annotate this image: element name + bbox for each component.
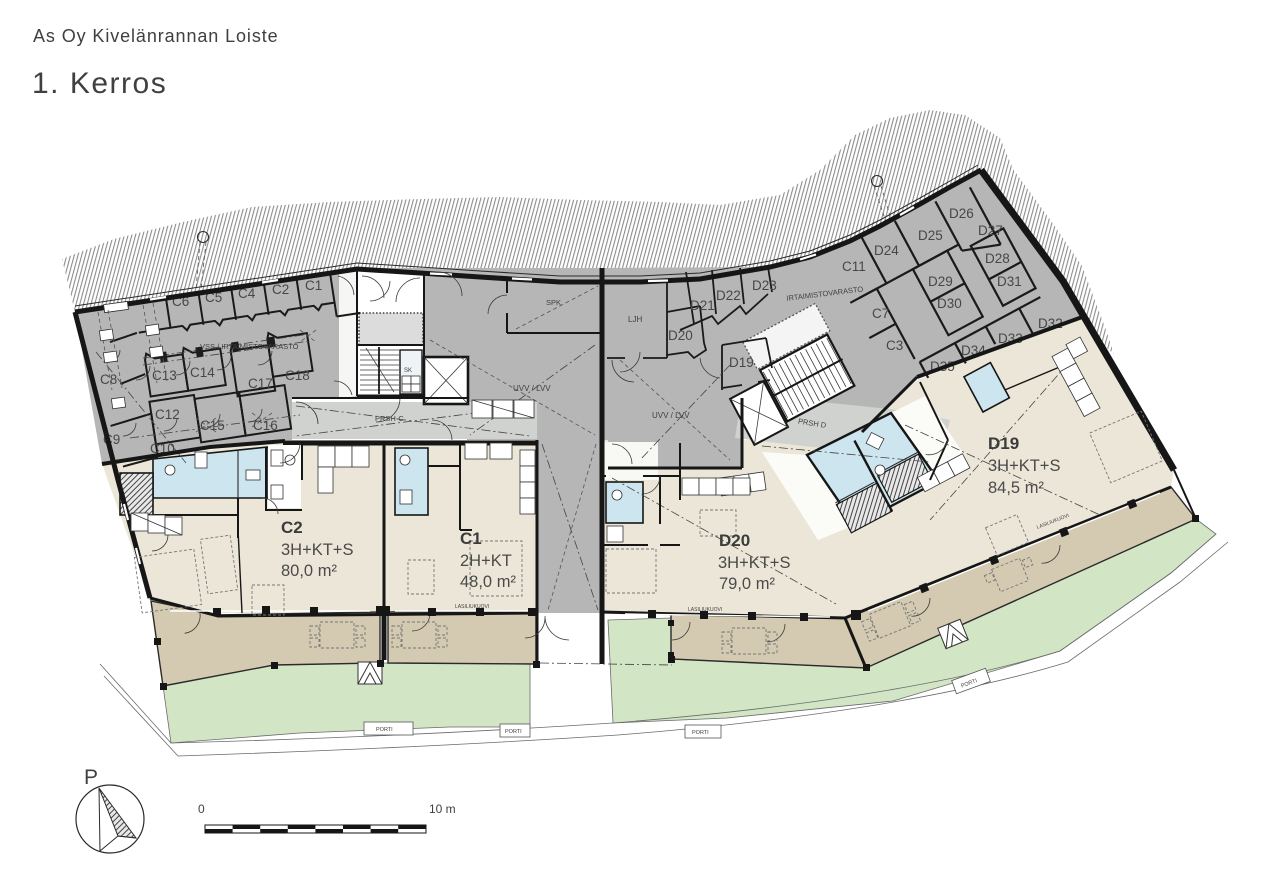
svg-text:3H+KT+S: 3H+KT+S bbox=[281, 541, 353, 559]
svg-text:D30: D30 bbox=[937, 296, 962, 311]
svg-text:D19: D19 bbox=[729, 355, 754, 370]
svg-text:UVV / LVV: UVV / LVV bbox=[513, 384, 551, 393]
svg-text:0: 0 bbox=[198, 802, 205, 816]
svg-text:D23: D23 bbox=[752, 278, 777, 293]
svg-text:PRSH-C: PRSH-C bbox=[375, 414, 404, 423]
svg-text:3H+KT+S: 3H+KT+S bbox=[718, 554, 790, 572]
svg-text:C1: C1 bbox=[460, 529, 482, 548]
svg-text:C15: C15 bbox=[200, 418, 225, 433]
svg-text:D22: D22 bbox=[716, 288, 741, 303]
svg-text:3H+KT+S: 3H+KT+S bbox=[988, 457, 1060, 475]
svg-text:48,0 m²: 48,0 m² bbox=[460, 573, 516, 591]
svg-text:C16: C16 bbox=[253, 418, 278, 433]
svg-text:D28: D28 bbox=[985, 251, 1010, 266]
svg-text:C8: C8 bbox=[100, 372, 117, 387]
svg-text:1. Kerros: 1. Kerros bbox=[32, 67, 167, 100]
svg-text:As Oy Kivelänrannan Loiste: As Oy Kivelänrannan Loiste bbox=[33, 26, 279, 46]
svg-text:80,0 m²: 80,0 m² bbox=[281, 562, 337, 580]
svg-text:D31: D31 bbox=[997, 274, 1022, 289]
svg-text:LASILIUKUOVI: LASILIUKUOVI bbox=[688, 607, 722, 613]
svg-text:C14: C14 bbox=[190, 365, 215, 380]
svg-text:D20: D20 bbox=[719, 531, 750, 550]
svg-text:D26: D26 bbox=[949, 206, 974, 221]
svg-text:C11: C11 bbox=[842, 259, 866, 274]
svg-text:LJH: LJH bbox=[628, 315, 642, 324]
svg-text:VSS / IRTAIMISTOVARASTO: VSS / IRTAIMISTOVARASTO bbox=[200, 342, 299, 351]
svg-text:P: P bbox=[84, 766, 98, 789]
svg-text:C18: C18 bbox=[285, 368, 310, 383]
svg-text:D29: D29 bbox=[928, 274, 953, 289]
svg-text:SK: SK bbox=[404, 368, 412, 374]
svg-text:D19: D19 bbox=[988, 434, 1019, 453]
svg-text:C2: C2 bbox=[272, 282, 289, 297]
svg-text:2H+KT: 2H+KT bbox=[460, 552, 512, 570]
svg-text:84,5 m²: 84,5 m² bbox=[988, 479, 1044, 497]
svg-text:79,0 m²: 79,0 m² bbox=[719, 575, 775, 593]
svg-text:LASILIUKUOVI: LASILIUKUOVI bbox=[455, 604, 489, 610]
svg-text:D24: D24 bbox=[874, 243, 899, 258]
svg-text:C17: C17 bbox=[248, 376, 273, 391]
svg-text:D27: D27 bbox=[978, 223, 1003, 238]
svg-text:D20: D20 bbox=[668, 328, 693, 343]
svg-text:D21: D21 bbox=[690, 298, 715, 313]
svg-text:C12: C12 bbox=[155, 407, 180, 422]
svg-text:C7: C7 bbox=[872, 306, 889, 321]
svg-text:D25: D25 bbox=[918, 228, 943, 243]
svg-text:C1: C1 bbox=[305, 278, 322, 293]
svg-text:10 m: 10 m bbox=[429, 802, 456, 816]
svg-text:PORTI: PORTI bbox=[505, 729, 522, 735]
svg-text:PORTI: PORTI bbox=[376, 727, 393, 733]
svg-text:C3: C3 bbox=[886, 338, 903, 353]
svg-text:C2: C2 bbox=[281, 518, 303, 537]
svg-text:SPK: SPK bbox=[546, 298, 561, 307]
svg-text:PORTI: PORTI bbox=[692, 730, 709, 736]
